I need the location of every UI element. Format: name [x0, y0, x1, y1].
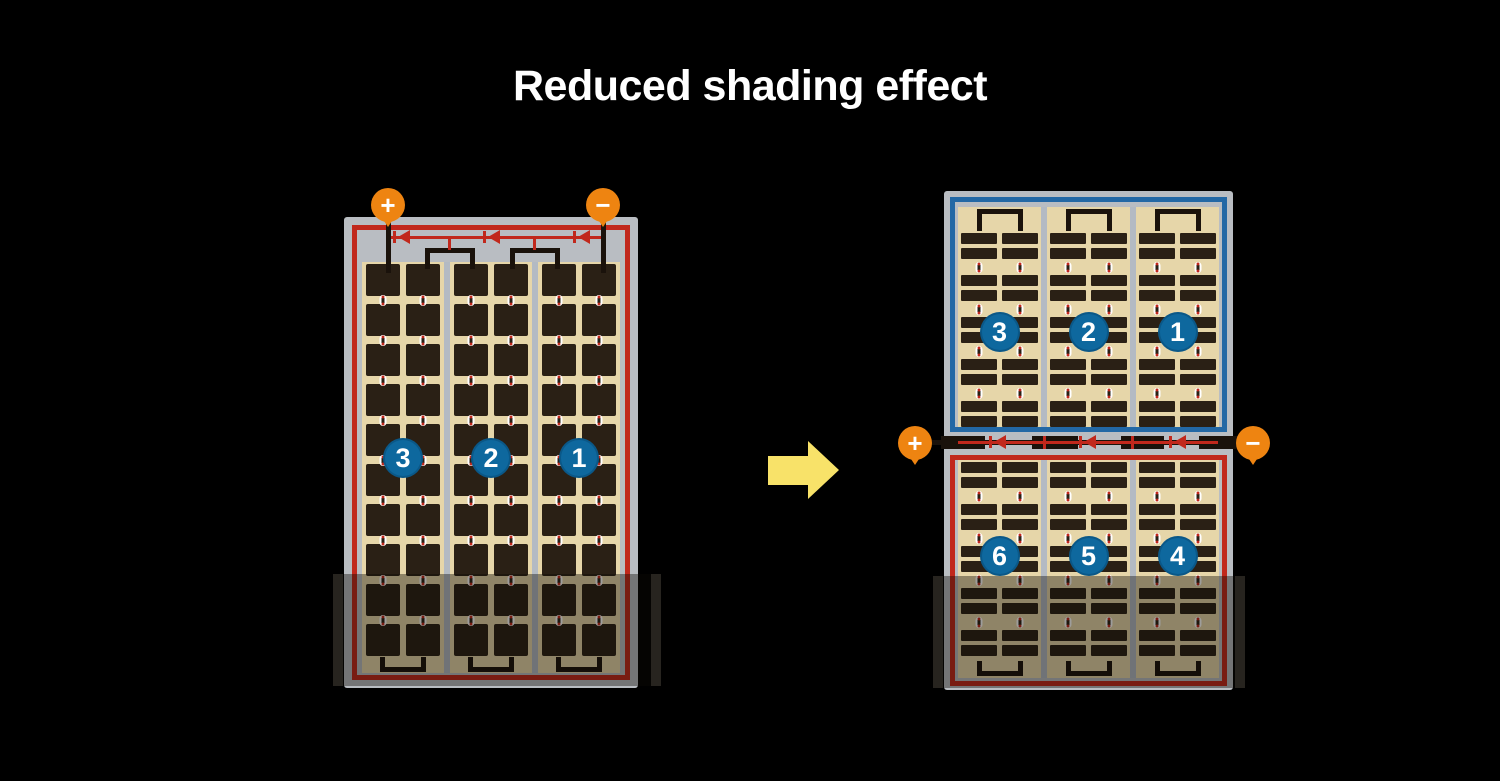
bypass-diode-icon	[398, 230, 410, 244]
bypass-diode-icon	[578, 230, 590, 244]
bypass-diode-icon	[994, 435, 1006, 449]
top-interconnect	[1066, 209, 1112, 231]
bus-tap	[533, 237, 536, 250]
string-number-badge: 1	[1158, 312, 1198, 352]
top-interconnect	[1155, 209, 1201, 231]
minus-terminal: −	[1236, 426, 1270, 460]
minus-terminal: −	[586, 188, 620, 222]
string-number-badge: 1	[559, 438, 599, 478]
shading-overlay	[933, 576, 1245, 688]
minus-icon: −	[595, 192, 610, 218]
bypass-diode-icon	[1084, 435, 1096, 449]
bus-tap	[1131, 436, 1134, 449]
bypass-diode-icon	[1174, 435, 1186, 449]
plus-terminal: +	[371, 188, 405, 222]
string-interconnect	[510, 248, 560, 269]
bypass-diode-icon	[488, 230, 500, 244]
shading-overlay	[333, 574, 661, 686]
string-number-badge: 3	[980, 312, 1020, 352]
string-number-badge: 5	[1069, 536, 1109, 576]
minus-icon: −	[1245, 430, 1260, 456]
right-arrow-icon	[768, 441, 840, 499]
plus-terminal: +	[898, 426, 932, 460]
top-string: 3 2 1	[944, 191, 1233, 437]
plus-icon: +	[380, 192, 395, 218]
reduced-shading-diagram: Reduced shading effect 3 2	[0, 0, 1500, 781]
string-number-badge: 2	[1069, 312, 1109, 352]
bus-tap	[448, 237, 451, 250]
string-interconnect	[425, 248, 475, 269]
string-number-badge: 2	[471, 438, 511, 478]
top-interconnect	[977, 209, 1023, 231]
string-number-badge: 4	[1158, 536, 1198, 576]
string-number-badge: 6	[980, 536, 1020, 576]
plus-icon: +	[907, 430, 922, 456]
bus-tap	[1043, 436, 1046, 449]
page-title: Reduced shading effect	[0, 62, 1500, 111]
string-number-badge: 3	[383, 438, 423, 478]
